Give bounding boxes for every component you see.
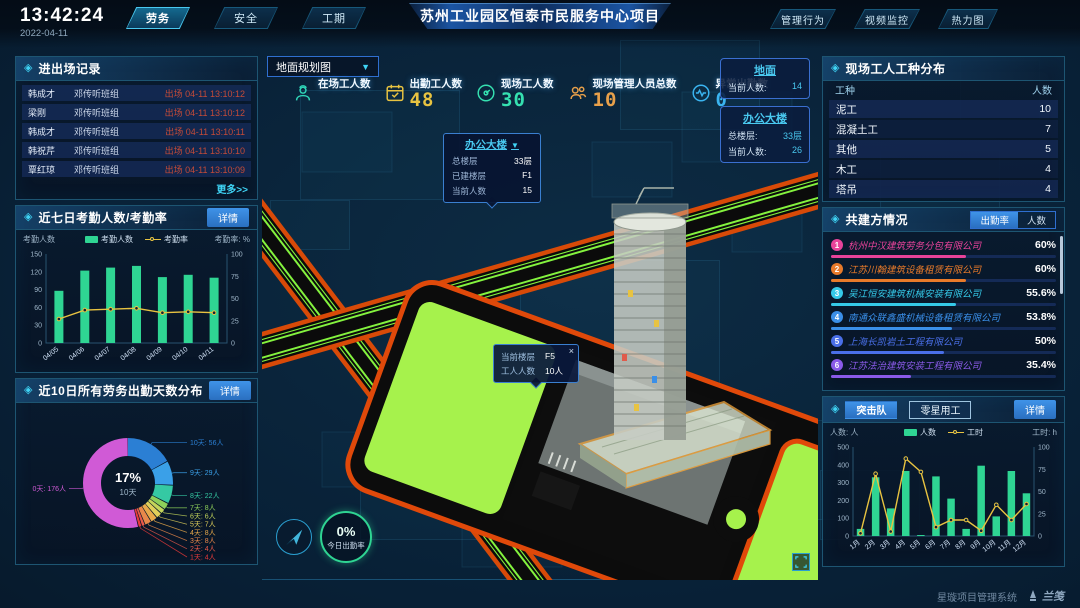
chart-legend: 人数工时 (823, 423, 1064, 438)
diamond-icon: ◈ (831, 404, 839, 415)
map-stat: 在场工人数 (292, 76, 371, 110)
progress-track (831, 375, 1056, 378)
stat-text: 在场工人数 (318, 76, 371, 110)
building-tooltip-row: 总楼层33层 (452, 155, 532, 167)
svg-text:11月: 11月 (996, 538, 1012, 553)
map-layer-value: 地面规划图 (276, 59, 331, 75)
tooltip-label: 已建楼层 (452, 170, 486, 182)
page-footer: 星璇项目管理系统 兰笺 (937, 588, 1064, 604)
office-tower[interactable] (612, 188, 688, 440)
stat-label: 在场工人数 (318, 76, 371, 91)
svg-text:04/07: 04/07 (94, 346, 112, 362)
stat-value: 30 (501, 91, 554, 110)
svg-text:75: 75 (1038, 467, 1046, 474)
team-name: 邓传听班组 (74, 125, 149, 138)
svg-text:30: 30 (34, 323, 42, 330)
worker-type: 塔吊 (836, 182, 857, 197)
legend-item[interactable]: 考勤人数 (85, 234, 133, 245)
building-tooltip[interactable]: 办公大楼▼ 总楼层33层已建楼层F1当前人数15 (443, 133, 541, 203)
team-name: 邓传听班组 (74, 163, 149, 176)
exit-event: 出场 04-11 13:10:10 (149, 144, 245, 157)
svg-text:04/08: 04/08 (120, 346, 138, 362)
svg-text:90: 90 (34, 287, 42, 294)
tab-heatmap[interactable]: 热力图 (938, 9, 998, 29)
partner-value: 60% (1035, 239, 1056, 251)
logo-text: 兰笺 (1042, 588, 1064, 604)
svg-text:150: 150 (30, 252, 42, 259)
partner-row: 5上海长凯岩土工程有限公司50% (831, 334, 1056, 348)
svg-text:0天: 176人: 0天: 176人 (33, 485, 66, 493)
col-count: 人数 (1032, 82, 1052, 97)
stat-value: 48 (410, 91, 463, 110)
overlay-card-row: 当前人数:14 (728, 81, 802, 94)
partner-item[interactable]: 2江苏川翰建筑设备租赁有限公司60% (831, 258, 1056, 282)
tab-label: 热力图 (939, 10, 997, 28)
partner-name: 南通众联鑫盛机械设备租赁有限公司 (848, 310, 1021, 324)
rate-label: 今日出勤率 (327, 540, 365, 551)
tab-headcount[interactable]: 人数 (1018, 212, 1055, 228)
worker-name: 梁刚 (28, 106, 74, 119)
y-axis-right-label: 工时: h (1032, 427, 1057, 438)
svg-text:2天: 4人: 2天: 4人 (190, 545, 216, 553)
today-attendance-rate-gauge: 0% 今日出勤率 (320, 511, 372, 563)
team-name: 邓传听班组 (74, 87, 149, 100)
map-stat: 现场工人数30 (475, 76, 554, 110)
svg-text:4月: 4月 (894, 538, 908, 551)
people-icon (567, 82, 589, 104)
floor-tooltip-rows: 当前楼层F5工人人数10人 (501, 351, 571, 377)
panel-title: 进出场记录 (38, 60, 101, 77)
partner-name: 杭州中汉建筑劳务分包有限公司 (848, 238, 1030, 252)
svg-text:25: 25 (231, 318, 239, 325)
map-stat: 现场管理人员总数10 (567, 76, 677, 110)
stat-text: 现场工人数30 (501, 76, 554, 110)
attendance-bar-line-chart[interactable]: 0306090120150025507510004/0504/0604/0704… (16, 246, 257, 370)
svg-text:50: 50 (1038, 489, 1046, 496)
svg-text:10天: 56人: 10天: 56人 (190, 439, 223, 447)
tab-management-behavior[interactable]: 管理行为 (770, 9, 836, 29)
svg-text:04/09: 04/09 (146, 346, 164, 362)
svg-text:1月: 1月 (848, 538, 862, 551)
worker-type-rows: 泥工10混凝土工7其他5木工4塔吊4 (823, 100, 1064, 198)
team-name: 邓传听班组 (74, 144, 149, 157)
stat-value (318, 91, 371, 110)
tooltip-value: 10人 (545, 365, 563, 377)
svg-text:7月: 7月 (939, 538, 953, 551)
map-stats-row: 在场工人数出勤工人数48现场工人数30现场管理人员总数10异常出勤数0 (292, 76, 768, 110)
tooltip-value: F5 (545, 351, 555, 363)
partner-row: 3吴江恒安建筑机械安装有限公司55.6% (831, 286, 1056, 300)
svg-text:300: 300 (837, 480, 849, 487)
svg-text:100: 100 (1038, 445, 1050, 452)
header-left-tabs: 劳务 安全 工期 (126, 7, 366, 29)
worker-name: 韩成才 (28, 87, 74, 100)
tab-labor[interactable]: 劳务 (126, 7, 190, 29)
system-name: 星璇项目管理系统 (937, 589, 1017, 604)
svg-text:3月: 3月 (878, 538, 892, 551)
rate-value: 0% (337, 524, 356, 539)
brand-logo: 兰笺 (1027, 588, 1064, 604)
panel-partners: ◈ 共建方情况 出勤率 人数 1杭州中汉建筑劳务分包有限公司60%2江苏川翰建筑… (822, 207, 1065, 391)
worker-type: 其他 (836, 142, 857, 157)
legend-item[interactable]: 人数 (904, 427, 936, 438)
header-right-tabs: 管理行为 视频监控 热力图 (770, 9, 998, 29)
progress-fill (831, 375, 911, 378)
tab-assault-team[interactable]: 突击队 (845, 401, 897, 419)
rank-badge: 2 (831, 263, 843, 275)
partner-row: 4南通众联鑫盛机械设备租赁有限公司53.8% (831, 310, 1056, 324)
svg-text:100: 100 (231, 252, 243, 259)
clock-date: 2022-04-11 (20, 28, 104, 39)
partner-value: 60% (1035, 263, 1056, 275)
svg-text:9月: 9月 (969, 538, 983, 551)
clock: 13:42:24 2022-04-11 (20, 5, 104, 39)
entry-exit-rows: 韩成才邓传听班组出场 04-11 13:10:12梁刚邓传听班组出场 04-11… (16, 81, 257, 177)
scrollbar-thumb[interactable] (1060, 236, 1063, 294)
legend-item[interactable]: 工时 (948, 427, 983, 438)
svg-text:200: 200 (837, 498, 849, 505)
col-type: 工种 (835, 82, 855, 97)
svg-text:4天: 8人: 4天: 8人 (190, 529, 216, 537)
worker-count: 5 (1045, 143, 1051, 155)
overlay-card-row: 总楼层:33层 (728, 129, 802, 142)
partner-value: 35.4% (1026, 359, 1056, 371)
exit-event: 出场 04-11 13:10:12 (149, 87, 245, 100)
panel-attendance-7days: ◈ 近七日考勤人数/考勤率 详情 考勤人数 考勤人数考勤率 考勤率: % 030… (15, 205, 258, 373)
detail-button[interactable]: 详情 (209, 381, 251, 400)
overlay-card-title[interactable]: 地面 (728, 62, 802, 78)
svg-text:500: 500 (837, 445, 849, 452)
entry-exit-row: 梁刚邓传听班组出场 04-11 13:10:12 (22, 104, 251, 120)
legend-item[interactable]: 考勤率 (145, 234, 188, 245)
tab-attendance-rate[interactable]: 出勤率 (971, 212, 1018, 228)
worker-icon (292, 82, 314, 104)
panel-squad-chart: ◈ 突击队 零星用工 详情 人数: 人 人数工时 工时: h 010020030… (822, 396, 1065, 567)
stat-text: 现场管理人员总数10 (593, 76, 677, 110)
gauge-icon (475, 82, 497, 104)
compass-reset-view-button[interactable] (276, 519, 312, 555)
building-tooltip-rows: 总楼层33层已建楼层F1当前人数15 (452, 155, 532, 197)
svg-text:10天: 10天 (120, 488, 137, 497)
tooltip-label: 工人人数 (501, 365, 535, 377)
partner-item[interactable]: 5上海长凯岩土工程有限公司50% (831, 330, 1056, 354)
svg-text:0: 0 (1038, 534, 1042, 541)
panel-title: 现场工人工种分布 (845, 60, 945, 77)
worker-type: 木工 (836, 162, 857, 177)
stat-text: 出勤工人数48 (410, 76, 463, 110)
svg-text:100: 100 (837, 516, 849, 523)
partner-row: 6江苏法治建筑安装工程有限公司35.4% (831, 358, 1056, 372)
fullscreen-icon (795, 556, 807, 568)
worker-name: 韩成才 (28, 125, 74, 138)
worker-count: 10 (1039, 103, 1051, 115)
y-axis-left-label: 人数: 人 (830, 427, 858, 438)
more-link[interactable]: 更多>> (216, 181, 248, 196)
tab-label: 劳务 (127, 8, 189, 28)
map-overlay-card[interactable]: 办公大楼总楼层:33层当前人数:26 (720, 106, 810, 163)
tooltip-label: 总楼层 (452, 155, 478, 167)
fullscreen-button[interactable] (792, 553, 810, 571)
worker-count: 4 (1045, 183, 1051, 195)
worker-type-row: 其他5 (829, 140, 1058, 158)
partners-tabs: 出勤率 人数 (970, 211, 1056, 229)
rank-badge: 4 (831, 311, 843, 323)
svg-text:2月: 2月 (863, 538, 877, 551)
diamond-icon: ◈ (24, 385, 32, 396)
tab-label: 管理行为 (771, 10, 835, 28)
pulse-icon (690, 82, 712, 104)
site-3d-map[interactable]: 地面规划图 ▼ 在场工人数出勤工人数48现场工人数30现场管理人员总数10异常出… (262, 52, 818, 580)
worker-type-row: 塔吊4 (829, 180, 1058, 198)
svg-text:04/10: 04/10 (171, 346, 189, 362)
overlay-card-row: 当前人数:26 (728, 145, 802, 158)
tooltip-label: 当前人数 (452, 185, 486, 197)
partner-row: 2江苏川翰建筑设备租赁有限公司60% (831, 262, 1056, 276)
overlay-label: 总楼层: (728, 129, 758, 142)
svg-text:04/11: 04/11 (198, 346, 216, 362)
exit-event: 出场 04-11 13:10:12 (149, 106, 245, 119)
top-header-bar: 13:42:24 2022-04-11 劳务 安全 工期 苏州工业园区恒泰市民服… (0, 0, 1080, 48)
partner-name: 吴江恒安建筑机械安装有限公司 (848, 286, 1021, 300)
partner-row: 1杭州中汉建筑劳务分包有限公司60% (831, 238, 1056, 252)
panel-title: 近10日所有劳务出勤天数分布 (38, 382, 202, 399)
worker-name: 韩祝芹 (28, 144, 74, 157)
tooltip-value: 33层 (514, 155, 532, 167)
floor-tooltip-row: 工人人数10人 (501, 365, 571, 377)
svg-text:6天: 6人: 6天: 6人 (190, 512, 216, 520)
close-icon[interactable]: × (569, 346, 574, 356)
tab-label: 安全 (215, 8, 277, 28)
overlay-value: 14 (792, 81, 802, 94)
diamond-icon: ◈ (24, 63, 32, 74)
overlay-card-title[interactable]: 办公大楼 (728, 110, 802, 126)
detail-button[interactable]: 详情 (1014, 400, 1056, 419)
logo-icon (1027, 590, 1039, 602)
worker-type-row: 泥工10 (829, 100, 1058, 118)
svg-text:8月: 8月 (954, 538, 968, 551)
tab-label: 视频监控 (855, 10, 919, 28)
exit-event: 出场 04-11 13:10:09 (149, 163, 245, 176)
rank-badge: 1 (831, 239, 843, 251)
svg-text:120: 120 (30, 269, 42, 276)
partner-item[interactable]: 4南通众联鑫盛机械设备租赁有限公司53.8% (831, 306, 1056, 330)
partner-value: 55.6% (1026, 287, 1056, 299)
worker-type: 泥工 (836, 102, 857, 117)
worker-type: 混凝土工 (836, 122, 878, 137)
page-title: 苏州工业园区恒泰市民服务中心项目 (409, 3, 671, 29)
building-tooltip-row: 已建楼层F1 (452, 170, 532, 182)
floor-tooltip[interactable]: × 当前楼层F5工人人数10人 (493, 344, 579, 383)
tooltip-label: 当前楼层 (501, 351, 535, 363)
svg-text:400: 400 (837, 462, 849, 469)
svg-text:0: 0 (231, 341, 235, 348)
svg-text:17%: 17% (115, 470, 141, 485)
map-overlay-cards: 地面当前人数:14办公大楼总楼层:33层当前人数:26 (720, 58, 810, 170)
svg-text:6月: 6月 (924, 538, 938, 551)
svg-text:10月: 10月 (981, 538, 998, 553)
entry-exit-row: 韩成才邓传听班组出场 04-11 13:10:12 (22, 85, 251, 101)
map-layer-dropdown[interactable]: 地面规划图 ▼ (267, 56, 379, 77)
partner-item[interactable]: 6江苏法治建筑安装工程有限公司35.4% (831, 354, 1056, 378)
worker-type-row: 木工4 (829, 160, 1058, 178)
stat-value: 10 (593, 91, 677, 110)
building-tooltip-title[interactable]: 办公大楼 (465, 139, 507, 151)
partner-name: 江苏川翰建筑设备租赁有限公司 (848, 262, 1030, 276)
svg-text:04/05: 04/05 (42, 346, 60, 362)
svg-text:50: 50 (231, 296, 239, 303)
tooltip-value: F1 (522, 170, 532, 182)
entry-exit-row: 韩成才邓传听班组出场 04-11 13:10:11 (22, 123, 251, 139)
tab-safety[interactable]: 安全 (214, 7, 278, 29)
map-stat: 出勤工人数48 (384, 76, 463, 110)
tooltip-value: 15 (523, 185, 532, 197)
tab-odd-jobs[interactable]: 零星用工 (909, 401, 971, 419)
overlay-label: 当前人数: (728, 145, 767, 158)
diamond-icon: ◈ (831, 214, 839, 225)
calendar-check-icon (384, 82, 406, 104)
svg-text:25: 25 (1038, 511, 1046, 518)
partner-item[interactable]: 3吴江恒安建筑机械安装有限公司55.6% (831, 282, 1056, 306)
overlay-label: 当前人数: (728, 81, 767, 94)
y-axis-right-label: 考勤率: % (214, 234, 250, 245)
team-name: 邓传听班组 (74, 106, 149, 119)
entry-exit-row: 韩祝芹邓传听班组出场 04-11 13:10:10 (22, 142, 251, 158)
svg-text:5月: 5月 (909, 538, 923, 551)
overlay-value: 33层 (783, 129, 802, 142)
tab-schedule[interactable]: 工期 (302, 7, 366, 29)
partner-item[interactable]: 1杭州中汉建筑劳务分包有限公司60% (831, 234, 1056, 258)
partner-name: 上海长凯岩土工程有限公司 (848, 334, 1030, 348)
paper-plane-icon (283, 526, 305, 548)
overlay-value: 26 (792, 145, 802, 158)
clock-time: 13:42:24 (20, 5, 104, 27)
panel-attendance-days-distribution: ◈ 近10日所有劳务出勤天数分布 详情 10天: 56人9天: 29人8天: 2… (15, 378, 258, 565)
detail-button[interactable]: 详情 (207, 208, 249, 227)
worker-type-table-header: 工种 人数 (823, 81, 1064, 98)
rank-badge: 3 (831, 287, 843, 299)
worker-count: 7 (1045, 123, 1051, 135)
svg-text:75: 75 (231, 274, 239, 281)
chevron-down-icon: ▼ (361, 62, 370, 72)
partner-name: 江苏法治建筑安装工程有限公司 (848, 358, 1021, 372)
partners-list: 1杭州中汉建筑劳务分包有限公司60%2江苏川翰建筑设备租赁有限公司60%3吴江恒… (823, 232, 1064, 385)
svg-text:3天: 8人: 3天: 8人 (190, 537, 216, 545)
floor-tooltip-row: 当前楼层F5 (501, 351, 571, 363)
chevron-down-icon[interactable]: ▼ (511, 141, 519, 150)
building-tooltip-row: 当前人数15 (452, 185, 532, 197)
diamond-icon: ◈ (24, 212, 32, 223)
svg-text:60: 60 (34, 305, 42, 312)
panel-worker-type-distribution: ◈ 现场工人工种分布 工种 人数 泥工10混凝土工7其他5木工4塔吊4 (822, 56, 1065, 202)
tab-label: 工期 (303, 8, 365, 28)
panel-title: 近七日考勤人数/考勤率 (38, 209, 167, 226)
svg-text:12月: 12月 (1011, 538, 1028, 553)
svg-text:8天: 22人: 8天: 22人 (190, 492, 220, 500)
partner-value: 50% (1035, 335, 1056, 347)
map-overlay-card[interactable]: 地面当前人数:14 (720, 58, 810, 99)
tab-video-monitor[interactable]: 视频监控 (854, 9, 920, 29)
svg-text:5天: 7人: 5天: 7人 (190, 521, 216, 529)
svg-text:0: 0 (845, 534, 849, 541)
worker-type-row: 混凝土工7 (829, 120, 1058, 138)
exit-event: 出场 04-11 13:10:11 (149, 125, 245, 138)
entry-exit-row: 覃红琼邓传听班组出场 04-11 13:10:09 (22, 161, 251, 177)
squad-bar-line-chart[interactable]: 010020030040050002550751001月2月3月4月5月6月7月… (823, 439, 1064, 563)
rank-badge: 5 (831, 335, 843, 347)
diamond-icon: ◈ (831, 63, 839, 74)
svg-text:04/06: 04/06 (68, 346, 86, 362)
svg-text:9天: 29人: 9天: 29人 (190, 469, 220, 477)
attendance-days-donut-chart[interactable]: 10天: 56人9天: 29人8天: 22人7天: 8人6天: 6人5天: 7人… (16, 403, 257, 563)
worker-name: 覃红琼 (28, 163, 74, 176)
svg-text:1天: 4人: 1天: 4人 (190, 553, 216, 561)
panel-title: 共建方情况 (845, 211, 908, 228)
svg-text:7天: 8人: 7天: 8人 (190, 504, 216, 512)
partner-value: 53.8% (1026, 311, 1056, 323)
panel-entry-exit-records: ◈ 进出场记录 韩成才邓传听班组出场 04-11 13:10:12梁刚邓传听班组… (15, 56, 258, 200)
y-axis-left-label: 考勤人数 (23, 234, 55, 245)
rank-badge: 6 (831, 359, 843, 371)
svg-text:0: 0 (38, 341, 42, 348)
worker-count: 4 (1045, 163, 1051, 175)
